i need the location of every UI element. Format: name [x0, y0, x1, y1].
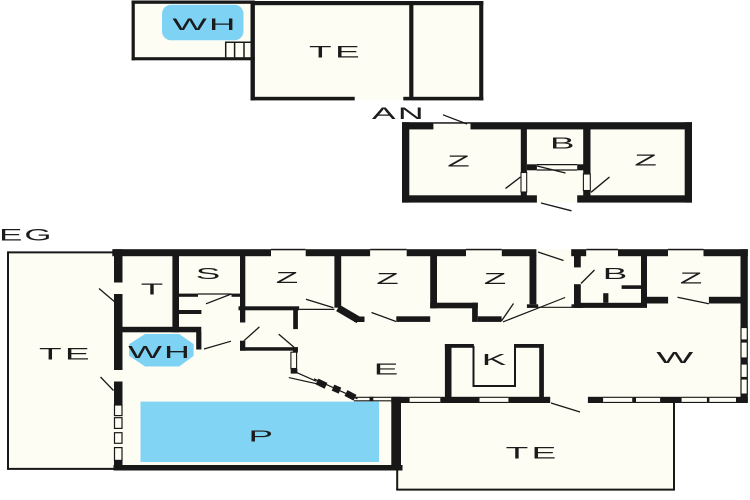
svg-text:B: B [603, 265, 628, 283]
svg-text:S: S [196, 265, 221, 283]
svg-text:Z: Z [376, 270, 398, 288]
svg-text:Z: Z [634, 151, 656, 169]
svg-text:TE: TE [309, 43, 363, 62]
svg-text:TE: TE [506, 444, 560, 463]
svg-text:Z: Z [484, 270, 506, 288]
svg-text:AN: AN [372, 104, 426, 123]
svg-text:EG: EG [0, 225, 54, 244]
svg-text:P: P [249, 428, 274, 446]
svg-text:K: K [482, 351, 507, 369]
svg-text:TE: TE [39, 345, 93, 364]
svg-text:B: B [550, 134, 575, 152]
svg-text:Z: Z [276, 269, 298, 287]
svg-text:Z: Z [447, 153, 469, 171]
svg-text:WH: WH [128, 342, 192, 362]
svg-text:E: E [374, 361, 399, 379]
svg-text:W: W [656, 349, 694, 367]
svg-text:WH: WH [172, 15, 237, 34]
svg-text:T: T [141, 281, 163, 299]
svg-text:Z: Z [680, 270, 702, 288]
